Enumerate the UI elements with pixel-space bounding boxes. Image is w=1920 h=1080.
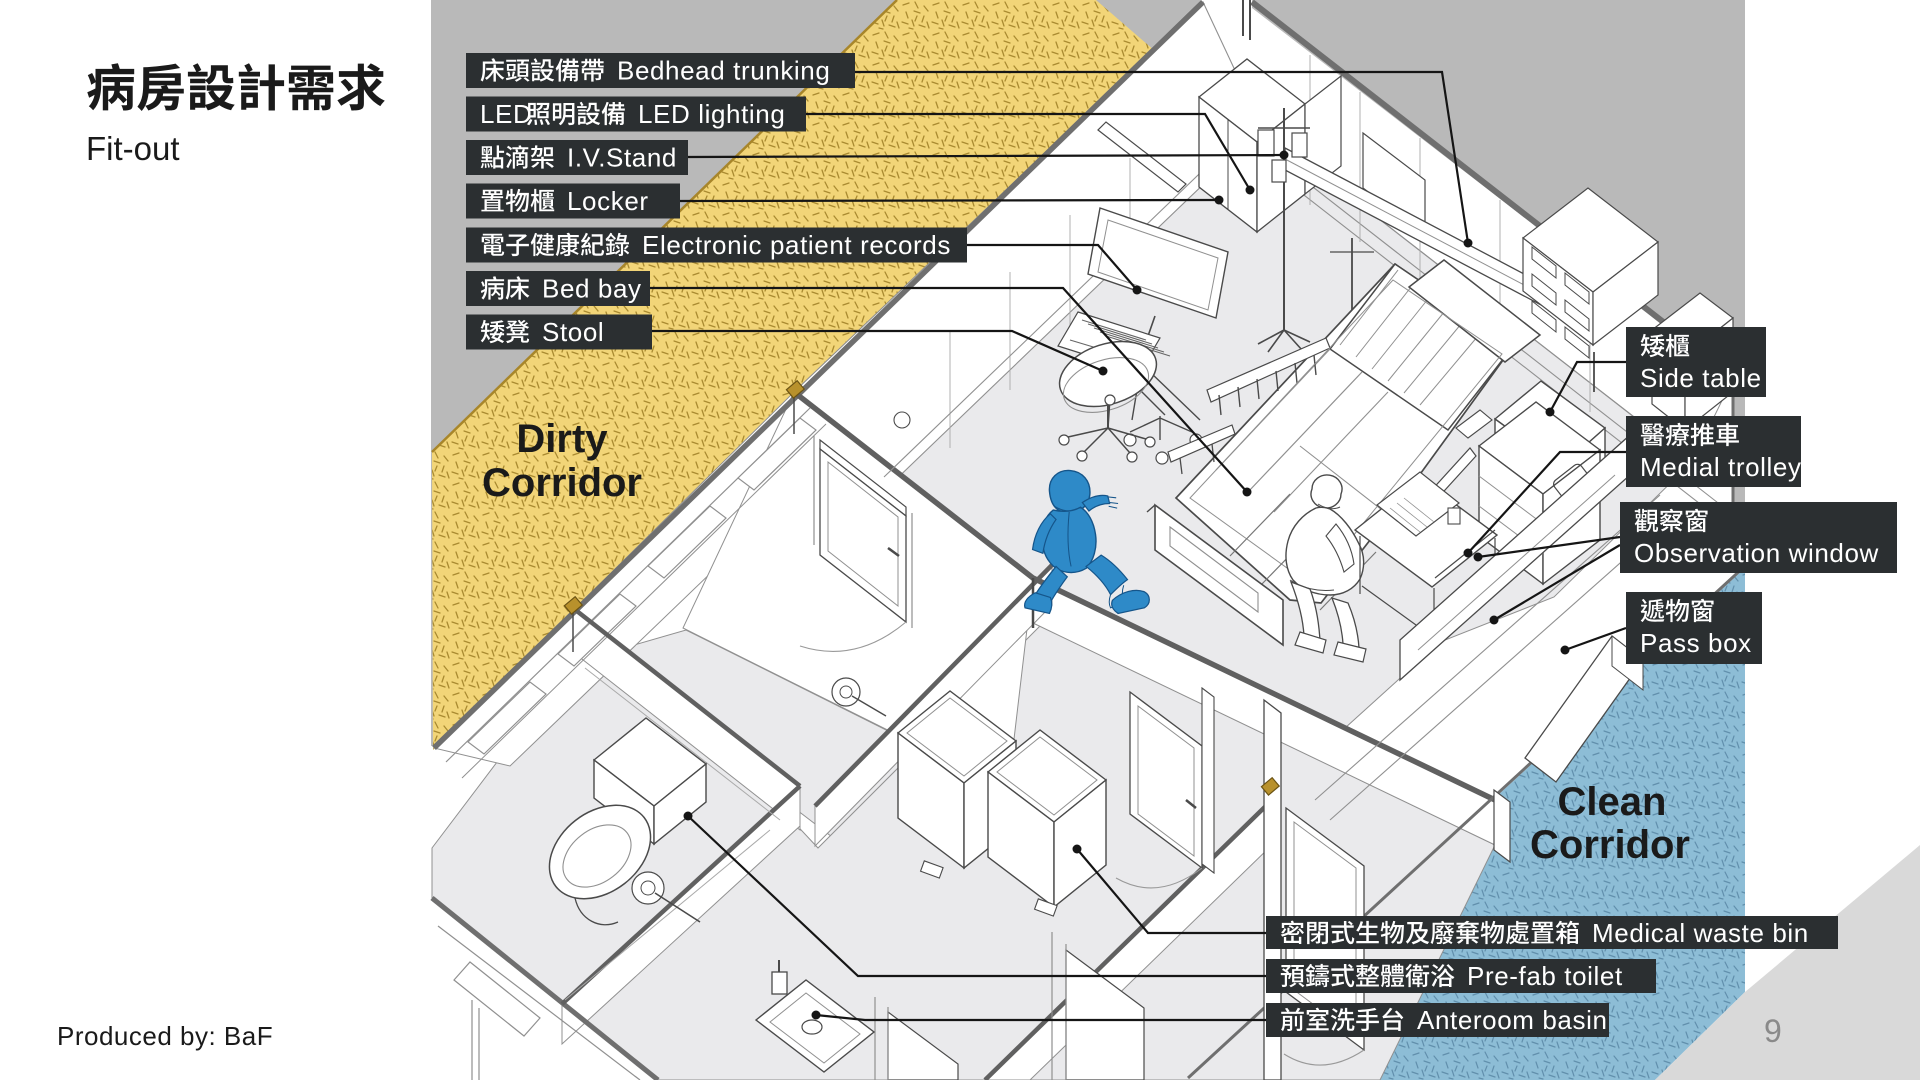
svg-text:Side table: Side table: [1640, 363, 1762, 393]
svg-text:Dirty: Dirty: [516, 417, 608, 461]
svg-text:Stool: Stool: [542, 317, 604, 347]
svg-text:I.V.Stand: I.V.Stand: [567, 143, 677, 173]
svg-text:LED lighting: LED lighting: [638, 99, 785, 129]
svg-text:Medial trolley: Medial trolley: [1640, 452, 1802, 482]
svg-text:Pre-fab toilet: Pre-fab toilet: [1467, 961, 1623, 991]
svg-text:9: 9: [1764, 1013, 1782, 1049]
svg-text:LED: LED: [480, 99, 532, 129]
svg-text:Observation window: Observation window: [1634, 538, 1879, 568]
svg-text:Medical waste bin: Medical waste bin: [1592, 918, 1809, 948]
svg-text:Anteroom basin: Anteroom basin: [1417, 1005, 1608, 1035]
svg-text:Locker: Locker: [567, 186, 649, 216]
svg-text:Produced by: BaF: Produced by: BaF: [57, 1021, 273, 1051]
svg-text:Electronic patient records: Electronic patient records: [642, 230, 951, 260]
svg-text:Clean: Clean: [1558, 780, 1667, 824]
svg-text:Fit-out: Fit-out: [86, 130, 180, 167]
svg-text:Bed bay: Bed bay: [542, 274, 642, 304]
svg-text:Pass box: Pass box: [1640, 628, 1752, 658]
svg-text:Corridor: Corridor: [482, 461, 642, 505]
svg-text:Bedhead trunking: Bedhead trunking: [617, 56, 830, 86]
svg-text:Corridor: Corridor: [1530, 823, 1690, 867]
